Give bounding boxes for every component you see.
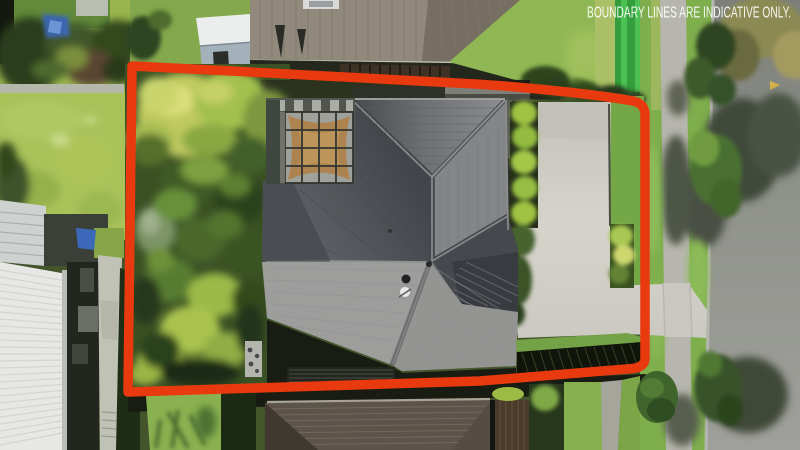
svg-text:BOUNDARY LINES ARE INDICATIVE: BOUNDARY LINES ARE INDICATIVE ONLY. — [587, 5, 791, 22]
